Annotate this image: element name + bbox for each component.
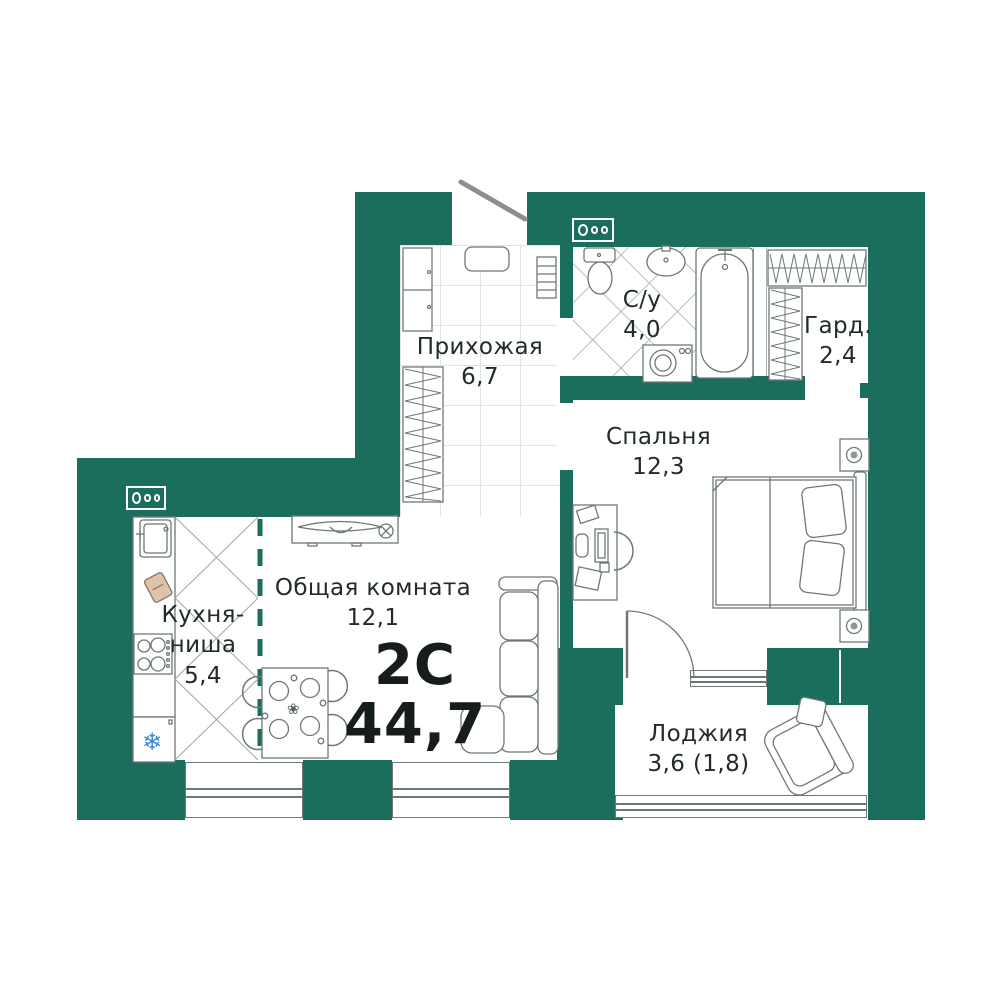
room-name: Лоджия (606, 719, 791, 749)
window-rail (393, 796, 509, 798)
label-wardrobe: Гард. 2,4 (783, 311, 893, 372)
wardrobe-door-opening (805, 376, 860, 403)
window-rail (186, 796, 302, 798)
wall-bedroom-bottom-left (557, 648, 623, 710)
room-area: 12,3 (581, 452, 736, 482)
wall-right-exterior (868, 192, 925, 820)
room-name: Спальня (581, 422, 736, 452)
bathroom-wardrobe-partition (753, 247, 767, 376)
room-name: С/у (592, 285, 692, 315)
kitchen-window (185, 762, 303, 818)
room-name: Общая комната (272, 573, 474, 603)
unit-type: 2С (325, 636, 505, 695)
logo-circle-icon (132, 492, 141, 504)
window-rail (186, 788, 302, 790)
window-rail (393, 788, 509, 790)
label-bathroom: С/у 4,0 (592, 285, 692, 346)
wall-bath-bottom (557, 376, 805, 403)
unit-total-area: 44,7 (325, 695, 505, 754)
room-area: 5,4 (141, 661, 265, 691)
label-loggia: Лоджия 3,6 (1,8) (606, 719, 791, 780)
room-name: Гард. (783, 311, 893, 341)
loggia-glazing (615, 795, 867, 818)
wall-left-exterior (77, 458, 133, 820)
window-rail (691, 676, 766, 678)
label-hallway: Прихожая 6,7 (390, 332, 570, 393)
room-area: 3,6 (1,8) (606, 749, 791, 779)
wall-bedroom-bottom-right (767, 648, 868, 705)
logo-badge-kitchen (126, 486, 166, 510)
wall-seam (839, 650, 841, 703)
room-name: Кухня- (141, 600, 265, 630)
room-name: Прихожая (390, 332, 570, 362)
unit-title: 2С 44,7 (325, 636, 505, 755)
label-bedroom: Спальня 12,3 (581, 422, 736, 483)
living-window (392, 762, 510, 818)
logo-badge-bathroom (572, 218, 614, 242)
wall-bedroom-left (560, 470, 573, 650)
logo-circle-icon (591, 226, 598, 234)
floor-plan-page: ❄ ❀ (0, 0, 1000, 1000)
bedroom-door-opening (557, 403, 573, 470)
room-area: 4,0 (592, 315, 692, 345)
label-kitchen: Кухня- ниша 5,4 (141, 600, 265, 691)
room-name: ниша (141, 630, 265, 660)
label-living: Общая комната 12,1 (272, 573, 474, 634)
room-area: 2,4 (783, 341, 893, 371)
window-rail (691, 681, 766, 683)
wall-bottom-1 (133, 760, 185, 820)
entrance-door-opening (452, 192, 527, 245)
room-area: 6,7 (390, 362, 570, 392)
bedroom-loggia-window (690, 670, 767, 687)
wall-bottom-2 (303, 760, 392, 820)
window-rail (616, 809, 866, 811)
window-rail (616, 803, 866, 805)
logo-circle-icon (144, 494, 151, 502)
logo-circle-icon (154, 494, 161, 502)
logo-circle-icon (578, 224, 588, 236)
room-area: 12,1 (272, 603, 474, 633)
logo-circle-icon (601, 226, 608, 234)
